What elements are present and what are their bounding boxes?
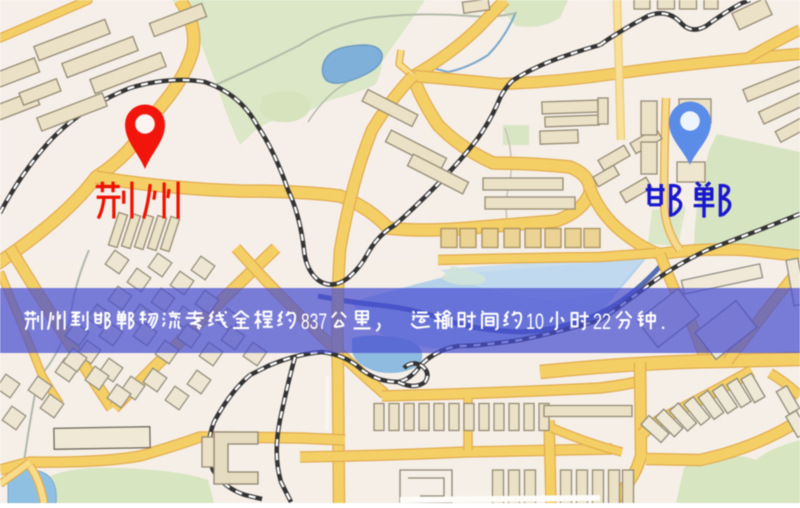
svg-text:10: 10: [526, 309, 544, 334]
svg-text:837: 837: [301, 309, 327, 334]
svg-text:22: 22: [593, 309, 611, 334]
svg-text:.: .: [660, 309, 666, 334]
